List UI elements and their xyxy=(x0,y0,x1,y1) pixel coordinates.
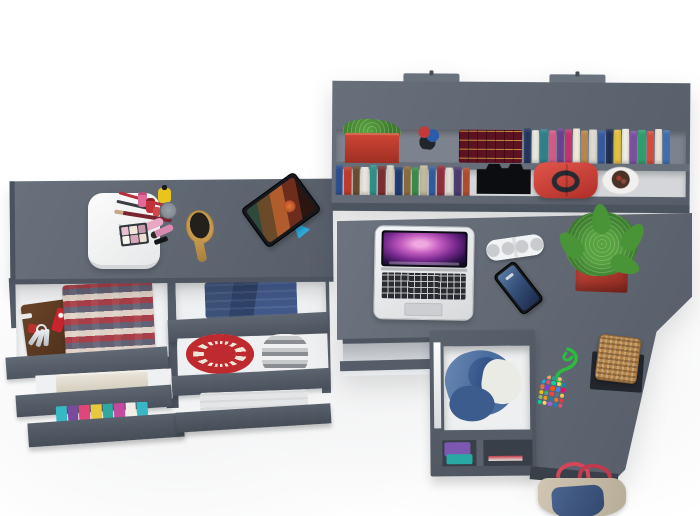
bead xyxy=(549,391,554,396)
bead xyxy=(552,376,557,381)
laptop xyxy=(373,225,475,321)
bead xyxy=(560,388,565,393)
bead xyxy=(547,401,552,406)
laptop-dock xyxy=(389,261,459,265)
bead xyxy=(556,382,561,387)
tote-bag xyxy=(536,462,628,516)
scene-canvas: × xyxy=(0,0,700,516)
bead-necklace xyxy=(538,345,588,415)
bead xyxy=(553,397,558,402)
underdesk-drawer-interior xyxy=(444,346,531,431)
red-fabric-strip xyxy=(488,456,522,461)
bead xyxy=(559,398,564,403)
laptop-keyboard xyxy=(382,272,466,299)
bead xyxy=(561,383,566,388)
bead xyxy=(541,379,546,384)
folded-teal-clothes xyxy=(446,454,472,464)
underdesk-mirror-sliver xyxy=(433,342,441,428)
bead xyxy=(548,396,553,401)
bead xyxy=(538,394,543,399)
laptop-trackpad xyxy=(404,303,442,317)
niche-divider xyxy=(476,440,483,466)
bead xyxy=(553,402,558,407)
bead xyxy=(554,392,559,397)
bead xyxy=(551,381,556,386)
bead xyxy=(542,400,547,405)
bead xyxy=(546,380,551,385)
underdesk-clothes-niche xyxy=(442,440,532,467)
bead xyxy=(558,403,563,408)
tote-bag-denim-panel xyxy=(551,484,605,516)
bead xyxy=(537,400,542,405)
bead xyxy=(560,393,565,398)
succulent-leaf xyxy=(591,203,612,234)
succulent-planter xyxy=(566,212,642,296)
wicker-basket xyxy=(594,334,641,385)
bead xyxy=(547,375,552,380)
bead xyxy=(557,377,562,382)
corner-desk-group xyxy=(0,0,700,516)
bead xyxy=(550,386,555,391)
bead xyxy=(555,387,560,392)
laptop-screen xyxy=(381,230,468,267)
underdesk-drawer-unit xyxy=(429,330,536,477)
